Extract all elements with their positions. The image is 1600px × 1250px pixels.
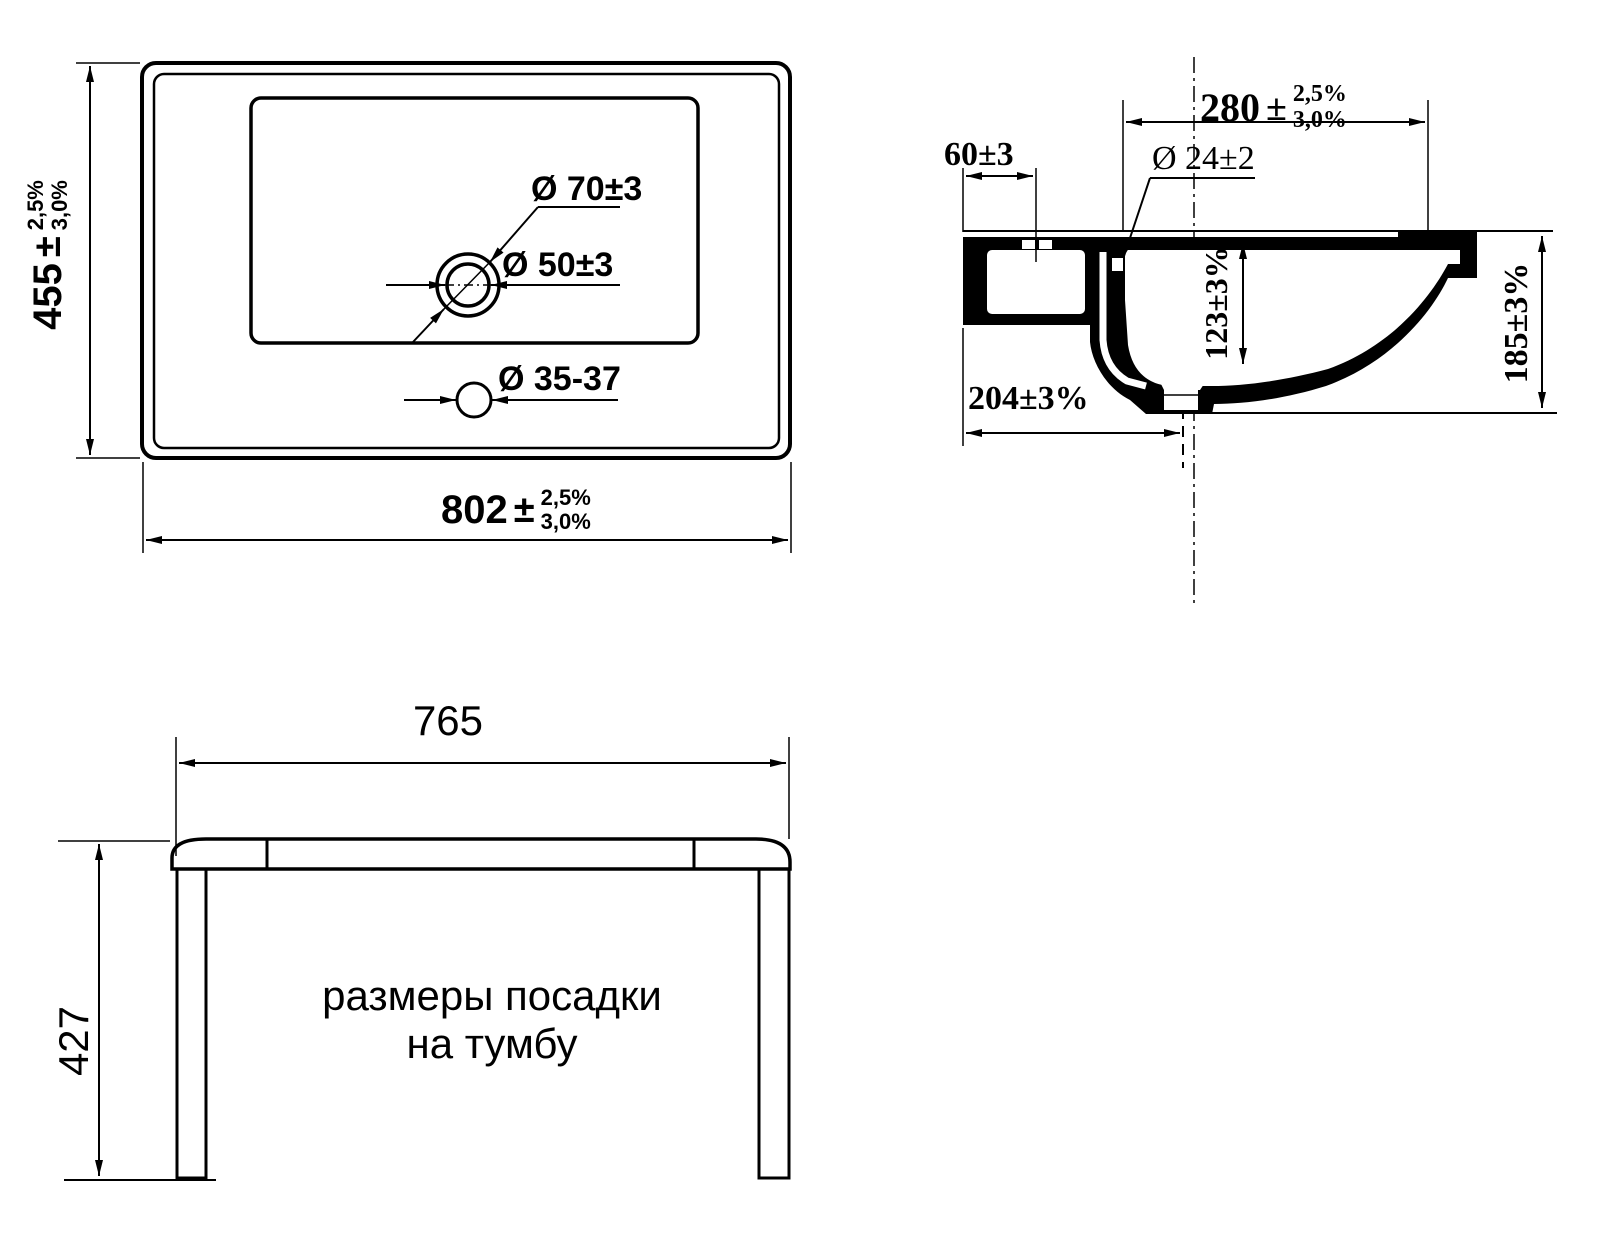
faucet-hole-inner-label: Ø 50±3: [502, 248, 613, 282]
front-view-linework: [58, 737, 790, 1180]
back-ledge-dimension-label: 60±3: [944, 138, 1014, 172]
top-view-width-dimension: 802±2,5%3,0%: [441, 486, 591, 534]
mount-caption-line2: на тумбу: [292, 1020, 692, 1068]
overflow-hole-side-label: Ø 24±2: [1152, 142, 1255, 176]
side-view-bowl-offset-dimension: 280±2,5%3,0%: [1200, 82, 1347, 134]
bowl-depth-dimension-label: 123±3%: [1198, 228, 1234, 378]
top-view-linework: [76, 63, 791, 553]
top-view-height-dimension: 455±2,5%3,0%: [24, 140, 80, 370]
drain-offset-dimension-label: 204±3%: [968, 382, 1089, 416]
drawing-canvas: [0, 0, 1600, 1250]
overall-height-dimension-label: 185±3%: [1498, 238, 1536, 408]
mount-height-dimension-label: 427: [50, 976, 96, 1106]
faucet-hole-outer-label: Ø 70±3: [531, 172, 642, 206]
mount-caption: размеры посадки на тумбу: [292, 972, 692, 1069]
mount-width-dimension-label: 765: [378, 697, 518, 745]
mount-caption-line1: размеры посадки: [292, 972, 692, 1020]
overflow-hole-top-label: Ø 35-37: [498, 362, 621, 396]
side-view-linework: [963, 57, 1557, 605]
technical-drawing-page: 455±2,5%3,0% 802±2,5%3,0% Ø 70±3 Ø 50±3 …: [0, 0, 1600, 1250]
